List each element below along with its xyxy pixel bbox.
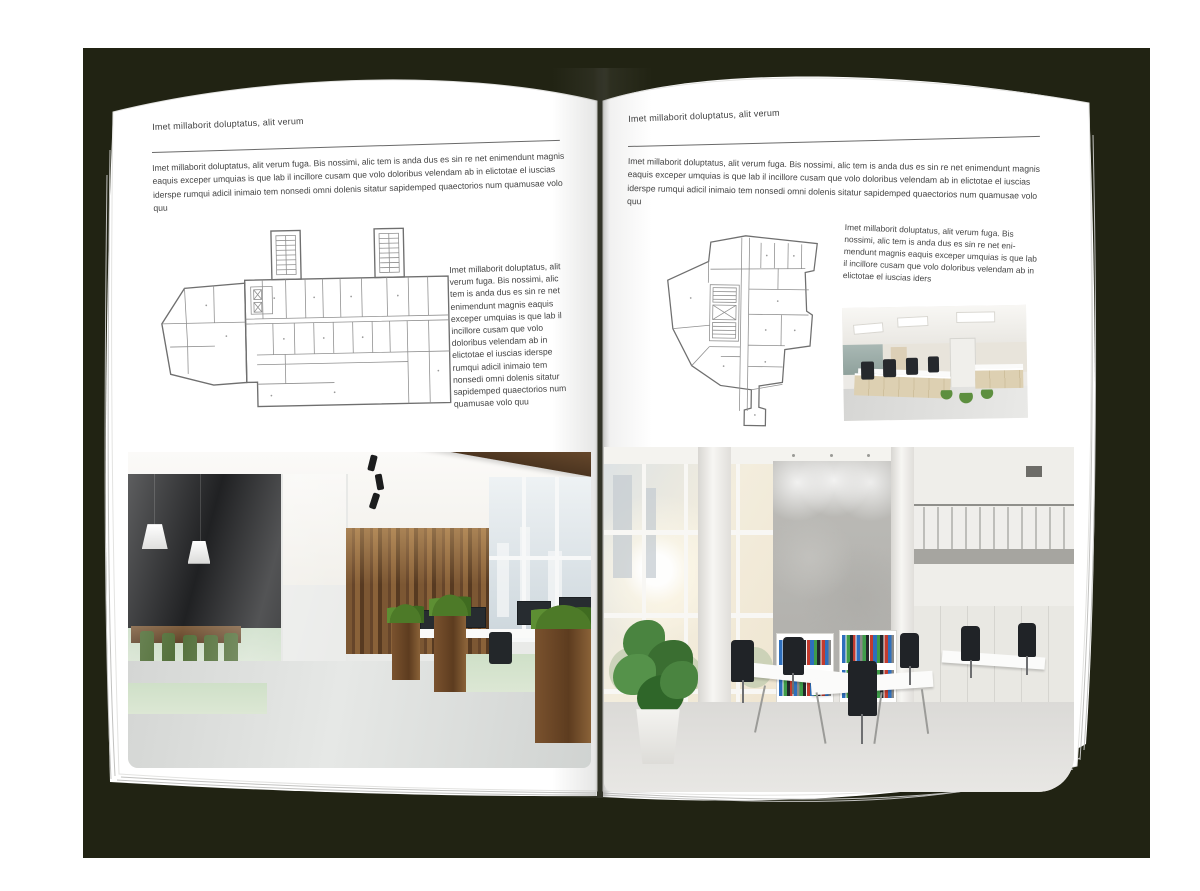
window-mullion: [604, 613, 778, 618]
balcony-soffit-shadow: [895, 549, 1074, 565]
office-chair: [927, 356, 938, 372]
black-chair: [783, 637, 804, 675]
floor-plan-left-drawing: [156, 224, 452, 416]
black-chair: [900, 633, 919, 668]
ceiling-downlight: [792, 454, 795, 457]
window-mullion: [604, 530, 778, 535]
ceiling-light-panel: [956, 311, 995, 323]
photo-atrium-office: [604, 447, 1074, 792]
glass-reflection: [128, 474, 346, 683]
small-plant: [939, 390, 954, 402]
glass-wall-edge: [281, 474, 283, 683]
plan-room-label-marks: [205, 294, 439, 398]
green-floor-mat: [128, 683, 267, 715]
black-chair: [848, 661, 876, 716]
binder-row: [842, 635, 894, 662]
office-chair: [489, 632, 512, 664]
black-chair: [961, 626, 980, 661]
black-chair: [1018, 623, 1037, 658]
planter-grass: [429, 591, 471, 616]
planter-grass: [387, 601, 424, 623]
office-chair: [883, 359, 896, 377]
ceiling-light-panel: [897, 316, 929, 328]
ceiling-downlight: [830, 454, 833, 457]
vent-grille: [1026, 466, 1042, 477]
wood-planter: [434, 610, 466, 692]
wood-wall-glow: [346, 528, 490, 585]
photo-loft-office: [128, 452, 591, 768]
planter-grass: [531, 601, 591, 629]
wood-planter: [392, 616, 420, 679]
mezzanine-balcony: [895, 447, 1074, 606]
floor-plan-right-drawing: [649, 220, 838, 431]
wood-planter: [535, 623, 591, 743]
balcony-glass-rail: [895, 507, 1074, 548]
brochure-mockup-stage: Imet millaborit doluptatus, alit verum I…: [0, 0, 1200, 891]
small-plant: [980, 389, 995, 401]
left-aside-paragraph: Imet millaborit doluptatus, alit verum f…: [449, 260, 570, 410]
office-chair: [905, 358, 918, 375]
desk-cabinet-row: [976, 368, 1024, 389]
right-aside-paragraph: Imet millaborit doluptatus, alit verum f…: [843, 222, 1041, 289]
black-chair: [731, 640, 755, 681]
right-intro-paragraph: Imet millaborit doluptatus, alit verum f…: [627, 155, 1048, 216]
small-plant: [958, 393, 975, 406]
balcony-rail: [895, 504, 1074, 506]
city-silhouette: [613, 475, 632, 579]
office-chair: [861, 362, 874, 380]
photo-small-office: [842, 305, 1028, 421]
